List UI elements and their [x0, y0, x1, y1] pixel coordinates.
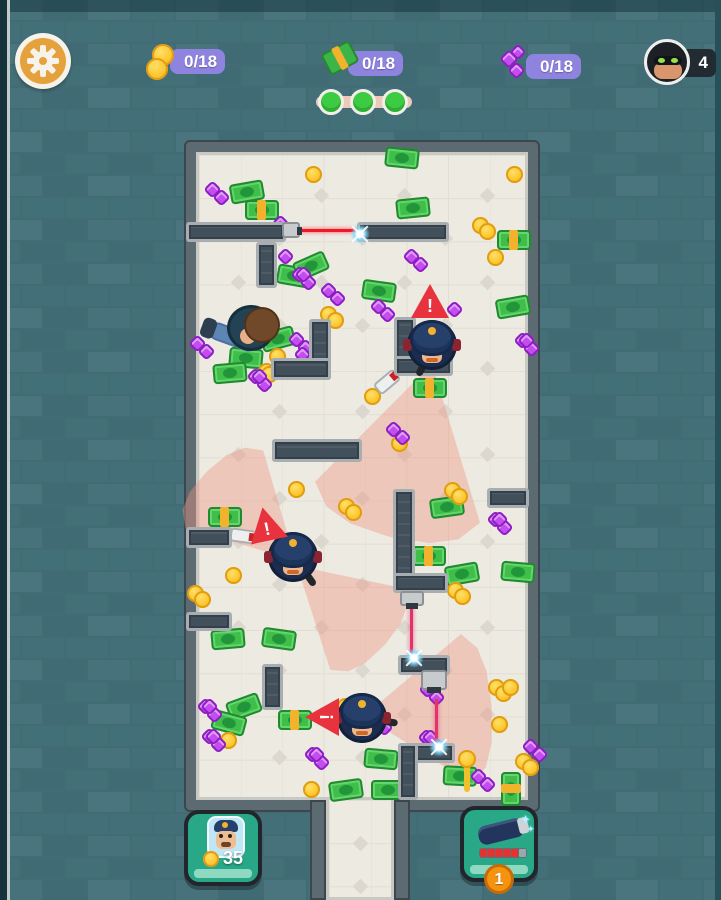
laser-spark — [429, 737, 449, 757]
brick — [132, 220, 174, 240]
brick — [572, 264, 614, 284]
brick — [550, 814, 592, 834]
brick — [66, 418, 108, 438]
brick — [418, 814, 460, 834]
brick — [44, 176, 86, 196]
brick — [22, 858, 64, 878]
brick — [22, 682, 64, 702]
brick — [88, 264, 130, 284]
brick — [110, 682, 152, 702]
settings-button[interactable] — [15, 33, 71, 89]
brick — [22, 726, 64, 746]
brick — [572, 748, 614, 768]
brick — [66, 286, 108, 306]
brick — [88, 616, 130, 636]
brick — [22, 550, 64, 570]
brick — [88, 220, 130, 240]
laser-emitter — [282, 222, 300, 238]
gold-coin — [288, 481, 305, 498]
brick — [660, 484, 702, 504]
wall — [272, 439, 362, 462]
brick — [110, 550, 152, 570]
brick — [594, 330, 636, 350]
brick — [594, 154, 636, 174]
brick — [44, 528, 86, 548]
brick — [660, 528, 702, 548]
brick — [88, 528, 130, 548]
cash-bundle — [501, 772, 521, 806]
brick — [88, 352, 130, 372]
wall — [256, 242, 277, 288]
brick — [44, 836, 86, 856]
brick — [660, 792, 702, 812]
brick — [616, 616, 658, 636]
top-hud: 0/18 0/18 0/18 4 — [0, 0, 721, 130]
cash-bundle — [497, 230, 531, 250]
brick — [88, 176, 130, 196]
brick — [550, 858, 592, 878]
gem-counter: 0/18 — [526, 54, 581, 79]
brick — [638, 506, 680, 526]
brick — [638, 550, 680, 570]
brick — [616, 308, 658, 328]
brick — [616, 396, 658, 416]
brick — [44, 352, 86, 372]
brick — [132, 572, 174, 592]
gold-coin — [451, 488, 468, 505]
brick — [110, 858, 152, 878]
brick — [660, 748, 702, 768]
brick — [66, 242, 108, 262]
cash-bundle — [412, 546, 446, 566]
brick — [88, 792, 130, 812]
hire-police-button[interactable]: 35 — [184, 810, 262, 886]
item-button[interactable]: ✦ ✦ 1 — [460, 806, 538, 882]
brick — [660, 660, 702, 680]
brick — [594, 550, 636, 570]
brick — [66, 858, 108, 878]
spark-icon: ✦ — [527, 824, 535, 835]
brick — [616, 792, 658, 812]
brick — [44, 220, 86, 240]
brick — [418, 858, 460, 878]
brick — [44, 616, 86, 636]
brick — [44, 748, 86, 768]
brick — [572, 440, 614, 460]
brick — [132, 792, 174, 812]
brick — [88, 572, 130, 592]
brick — [616, 440, 658, 460]
cash-bundle — [208, 507, 242, 527]
brick — [638, 770, 680, 790]
stun-gadget-icon — [476, 817, 525, 847]
security-camera — [421, 670, 447, 690]
gear-icon — [20, 38, 66, 84]
brick — [594, 418, 636, 438]
brick — [638, 858, 680, 878]
brick — [550, 726, 592, 746]
brick — [44, 572, 86, 592]
brick — [132, 440, 174, 460]
brick — [264, 836, 306, 856]
brick — [572, 396, 614, 416]
brick — [88, 836, 130, 856]
brick — [44, 396, 86, 416]
brick — [660, 264, 702, 284]
cash-bill — [395, 196, 431, 219]
exit-corridor-wall-left — [310, 800, 326, 900]
brick — [22, 594, 64, 614]
brick — [572, 176, 614, 196]
brick — [66, 462, 108, 482]
gold-coin — [454, 588, 471, 605]
progress-dot — [318, 89, 344, 115]
cash-bundle — [245, 200, 279, 220]
brick — [594, 286, 636, 306]
brick — [132, 308, 174, 328]
brick — [22, 242, 64, 262]
gold-coin — [491, 716, 508, 733]
brick — [88, 484, 130, 504]
brick — [616, 748, 658, 768]
brick — [660, 132, 702, 152]
brick — [132, 176, 174, 196]
brick — [616, 660, 658, 680]
brick — [572, 836, 614, 856]
progress-dot — [382, 89, 408, 115]
brick — [44, 484, 86, 504]
brick — [660, 308, 702, 328]
brick — [660, 572, 702, 592]
brick — [66, 594, 108, 614]
brick — [88, 660, 130, 680]
brick — [22, 374, 64, 394]
brick — [66, 726, 108, 746]
gold-coin — [305, 166, 322, 183]
left-edge-light — [7, 0, 10, 900]
brick — [594, 858, 636, 878]
brick — [66, 770, 108, 790]
laser-spark — [350, 224, 370, 244]
police-hat — [413, 323, 451, 353]
brick — [66, 198, 108, 218]
right-edge — [715, 0, 721, 900]
brick — [88, 748, 130, 768]
brick — [44, 264, 86, 284]
brick — [572, 704, 614, 724]
robber-avatar — [644, 39, 690, 85]
brick — [638, 594, 680, 614]
brick — [110, 198, 152, 218]
brick — [572, 308, 614, 328]
brick — [110, 594, 152, 614]
coin-stand-stem — [464, 764, 470, 792]
brick — [594, 506, 636, 526]
cash-bill — [363, 748, 399, 771]
wall — [357, 222, 449, 242]
left-edge-dark — [0, 0, 7, 900]
wall — [186, 527, 232, 548]
cash-bundle — [278, 710, 312, 730]
brick — [88, 440, 130, 460]
brick — [110, 330, 152, 350]
brick — [132, 528, 174, 548]
brick — [594, 242, 636, 262]
brick — [572, 220, 614, 240]
brick — [264, 880, 306, 900]
brick — [66, 682, 108, 702]
brick — [22, 286, 64, 306]
brick — [132, 396, 174, 416]
brick — [22, 462, 64, 482]
brick — [88, 704, 130, 724]
item-count-badge: 1 — [484, 864, 514, 894]
brick — [110, 726, 152, 746]
thief-head — [246, 309, 278, 341]
brick — [550, 550, 592, 570]
brick — [132, 704, 174, 724]
brick — [550, 154, 592, 174]
brick — [594, 814, 636, 834]
brick — [110, 418, 152, 438]
brick — [22, 418, 64, 438]
laser-beam — [300, 229, 357, 232]
brick — [110, 638, 152, 658]
exit-corridor-wall-right — [394, 800, 410, 900]
brick — [110, 814, 152, 834]
brick — [88, 880, 130, 900]
brick — [638, 638, 680, 658]
brick — [616, 132, 658, 152]
brick — [44, 308, 86, 328]
game-screen: !!! 0/18 0/18 0/18 4 — [0, 0, 721, 900]
brick — [594, 462, 636, 482]
brick — [572, 792, 614, 812]
brick — [638, 242, 680, 262]
brick — [550, 286, 592, 306]
brick — [594, 638, 636, 658]
brick — [66, 154, 108, 174]
gold-coin — [194, 591, 211, 608]
brick — [44, 880, 86, 900]
cash-bundle — [413, 378, 447, 398]
brick — [132, 660, 174, 680]
brick — [660, 880, 702, 900]
brick — [22, 638, 64, 658]
wall — [393, 573, 448, 593]
gold-coin — [225, 567, 242, 584]
brick — [660, 440, 702, 460]
coin-icon — [203, 851, 219, 867]
brick — [44, 440, 86, 460]
brick — [528, 880, 570, 900]
brick — [550, 374, 592, 394]
brick — [660, 704, 702, 724]
brick — [572, 132, 614, 152]
brick — [660, 616, 702, 636]
brick — [572, 528, 614, 548]
brick — [88, 308, 130, 328]
gold-coin — [479, 223, 496, 240]
brick — [638, 418, 680, 438]
brick — [572, 616, 614, 636]
brick — [550, 682, 592, 702]
laser-spark — [404, 648, 424, 668]
brick — [110, 506, 152, 526]
brick — [616, 704, 658, 724]
brick — [132, 484, 174, 504]
brick — [22, 770, 64, 790]
police-hat — [343, 696, 381, 726]
gold-coin — [303, 781, 320, 798]
brick — [22, 198, 64, 218]
coin-counter: 0/18 — [170, 49, 225, 74]
brick — [660, 220, 702, 240]
wall — [487, 488, 529, 508]
brick — [572, 572, 614, 592]
brick — [594, 682, 636, 702]
brick — [616, 880, 658, 900]
brick — [66, 506, 108, 526]
brick — [572, 484, 614, 504]
brick — [110, 154, 152, 174]
brick — [132, 880, 174, 900]
brick — [110, 286, 152, 306]
brick — [550, 198, 592, 218]
brick — [110, 462, 152, 482]
brick — [638, 154, 680, 174]
brick — [132, 264, 174, 284]
coins-icon — [146, 58, 168, 80]
brick — [594, 198, 636, 218]
wall — [186, 222, 286, 242]
brick — [638, 682, 680, 702]
brick — [550, 594, 592, 614]
brick — [616, 220, 658, 240]
brick — [132, 616, 174, 636]
police-officer — [404, 317, 460, 373]
brick — [22, 814, 64, 834]
brick — [132, 132, 174, 152]
brick — [594, 726, 636, 746]
coin-stand — [458, 750, 476, 768]
brick — [132, 836, 174, 856]
brick — [660, 352, 702, 372]
brick — [638, 198, 680, 218]
gold-coin — [487, 249, 504, 266]
brick — [44, 132, 86, 152]
brick — [88, 396, 130, 416]
brick — [550, 418, 592, 438]
brick — [594, 594, 636, 614]
brick — [110, 242, 152, 262]
brick — [66, 330, 108, 350]
brick — [638, 462, 680, 482]
police-officer — [334, 690, 390, 746]
brick — [550, 770, 592, 790]
police-hat — [274, 535, 312, 565]
brick — [132, 352, 174, 372]
gold-coin — [502, 679, 519, 696]
brick — [66, 550, 108, 570]
brick — [44, 660, 86, 680]
brick — [616, 528, 658, 548]
brick — [660, 396, 702, 416]
brick — [638, 286, 680, 306]
brick — [616, 836, 658, 856]
brick — [550, 330, 592, 350]
brick — [88, 132, 130, 152]
brick — [638, 374, 680, 394]
brick — [616, 264, 658, 284]
brick — [572, 880, 614, 900]
brick — [110, 770, 152, 790]
cash-bill — [384, 146, 420, 169]
brick — [594, 374, 636, 394]
brick — [550, 638, 592, 658]
brick — [660, 176, 702, 196]
brick — [638, 726, 680, 746]
brick — [22, 154, 64, 174]
brick — [638, 814, 680, 834]
gadget-charge-gauge — [479, 848, 527, 858]
laser-emitter — [400, 591, 424, 606]
brick — [132, 748, 174, 768]
wall — [398, 743, 418, 800]
brick — [22, 330, 64, 350]
brick — [66, 374, 108, 394]
wall — [262, 664, 283, 710]
brick — [616, 572, 658, 592]
brick — [550, 242, 592, 262]
brick — [66, 814, 108, 834]
brick — [616, 484, 658, 504]
wall — [186, 612, 232, 631]
brick — [660, 836, 702, 856]
brick — [22, 506, 64, 526]
brick — [44, 704, 86, 724]
brick — [44, 792, 86, 812]
cash-bill — [500, 561, 536, 584]
brick — [572, 352, 614, 372]
gold-coin — [345, 504, 362, 521]
gold-coin — [506, 166, 523, 183]
brick — [616, 176, 658, 196]
brick — [550, 506, 592, 526]
brick — [440, 880, 482, 900]
brick — [638, 330, 680, 350]
brick — [594, 770, 636, 790]
police-cost-label: 35 — [188, 848, 258, 869]
progress-dot — [350, 89, 376, 115]
brick — [66, 638, 108, 658]
brick — [572, 660, 614, 680]
wall — [393, 489, 415, 583]
thief-player[interactable] — [214, 300, 294, 370]
brick — [616, 352, 658, 372]
brick — [110, 374, 152, 394]
brick — [550, 462, 592, 482]
